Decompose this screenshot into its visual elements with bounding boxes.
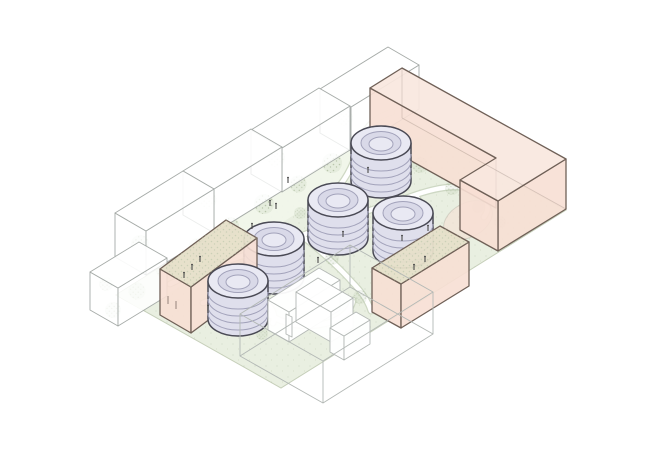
storage-tank-2 <box>308 183 368 255</box>
tree <box>294 207 306 219</box>
tree <box>353 290 367 304</box>
axonometric-site-diagram: Axonometric site massing diagram with fi… <box>0 0 650 459</box>
storage-tank-1 <box>351 126 411 198</box>
site-axonometric-svg <box>0 0 650 459</box>
